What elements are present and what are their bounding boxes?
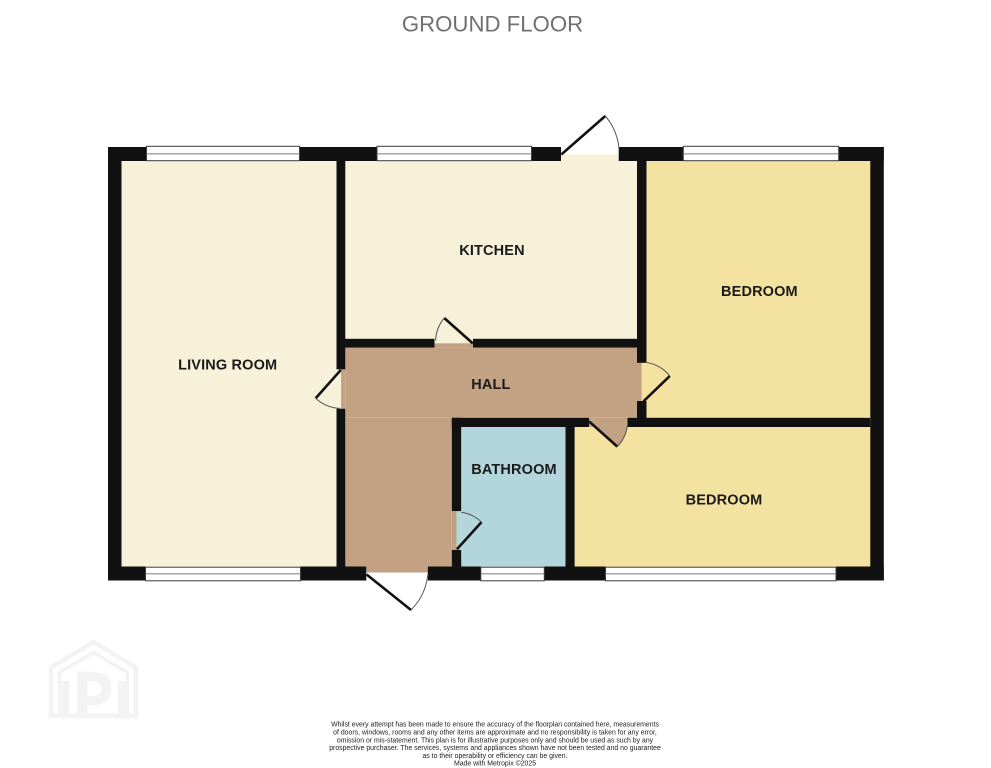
svg-text:BATHROOM: BATHROOM bbox=[471, 462, 557, 478]
svg-text:KITCHEN: KITCHEN bbox=[459, 243, 525, 259]
svg-text:Made with Metropix ©2025: Made with Metropix ©2025 bbox=[454, 760, 536, 768]
svg-text:of doors, windows, rooms and a: of doors, windows, rooms and any other i… bbox=[333, 730, 657, 737]
svg-text:BEDROOM: BEDROOM bbox=[686, 492, 763, 508]
svg-text:as to their operability or eff: as to their operability or efficiency ca… bbox=[422, 753, 567, 760]
svg-text:BEDROOM: BEDROOM bbox=[721, 284, 798, 300]
svg-text:Whilst every attempt has been: Whilst every attempt has been made to en… bbox=[331, 722, 659, 729]
svg-text:prospective purchaser. The ser: prospective purchaser. The services, sys… bbox=[329, 745, 661, 752]
svg-text:LIVING ROOM: LIVING ROOM bbox=[178, 358, 277, 374]
svg-text:omission or mis-statement. Thi: omission or mis-statement. This plan is … bbox=[337, 737, 654, 744]
svg-text:HALL: HALL bbox=[471, 377, 510, 393]
svg-text:GROUND FLOOR: GROUND FLOOR bbox=[402, 11, 583, 36]
